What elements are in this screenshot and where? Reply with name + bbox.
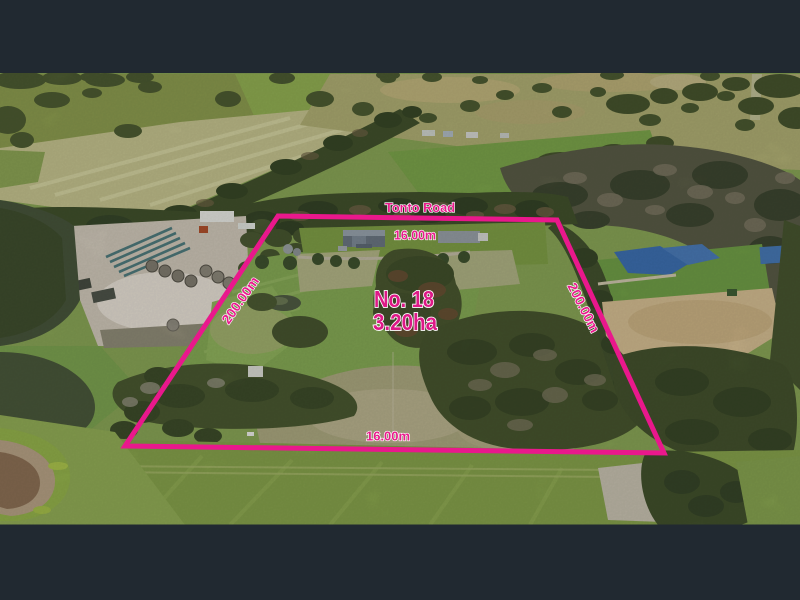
svg-text:3.20ha: 3.20ha (373, 309, 437, 335)
svg-text:Tonto Road: Tonto Road (385, 201, 455, 215)
svg-text:16.00m: 16.00m (394, 228, 436, 243)
svg-text:16.00m: 16.00m (366, 429, 410, 444)
